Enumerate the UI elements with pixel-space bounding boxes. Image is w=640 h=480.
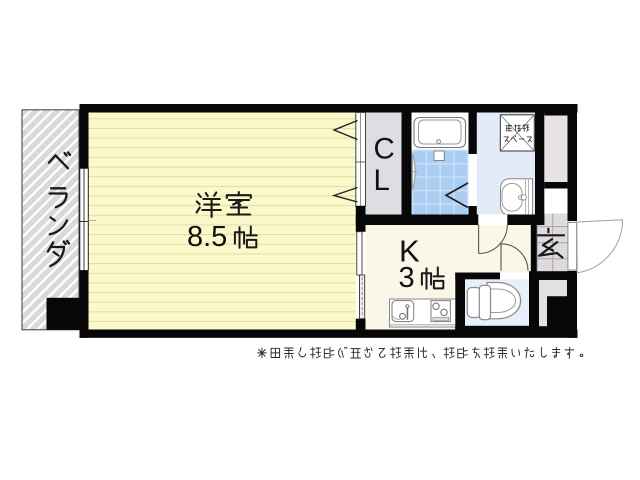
svg-text:L: L [374,164,390,197]
svg-text:C: C [374,133,395,166]
svg-text:3: 3 [399,262,415,294]
svg-text:8.5: 8.5 [187,221,227,253]
